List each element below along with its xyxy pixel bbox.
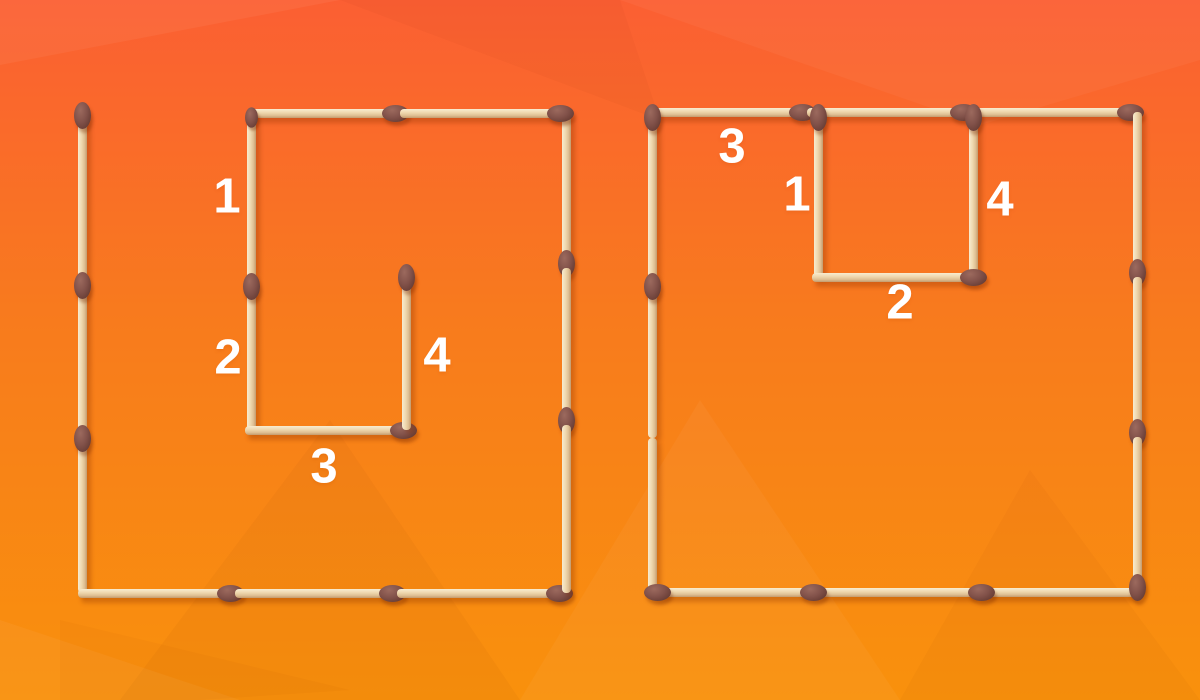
matchstick-match-1 [814, 112, 823, 277]
match-head-match-4 [965, 104, 982, 131]
matchstick-outer-right-1 [1133, 112, 1142, 277]
matchstick-outer-bottom-3 [976, 588, 1137, 597]
matchstick-match-4 [969, 112, 978, 277]
matchstick-match-3 [650, 108, 807, 117]
match-head-outer-right-3 [1129, 574, 1146, 601]
match-head-match-2 [960, 269, 987, 286]
matchstick-outer-bottom-1 [652, 588, 808, 597]
matchstick-outer-left-1 [648, 112, 657, 281]
match-head-outer-bottom-3 [968, 584, 995, 601]
matchstick-outer-top-2 [807, 108, 968, 117]
label-2-right-figure: 2 [886, 279, 913, 328]
matchstick-outer-top-3 [968, 108, 1135, 117]
right-figure: 3142 [0, 0, 1200, 700]
label-3-right-figure: 3 [718, 123, 745, 172]
match-head-match-1 [810, 104, 827, 131]
matchstick-outer-left-3 [648, 438, 657, 592]
match-head-outer-left-1 [644, 104, 661, 131]
matchstick-outer-right-3 [1133, 437, 1142, 592]
label-1-right-figure: 1 [783, 171, 810, 220]
matchstick-outer-right-2 [1133, 277, 1142, 437]
matchstick-outer-bottom-2 [808, 588, 976, 597]
match-head-outer-bottom-2 [800, 584, 827, 601]
puzzle-stage: 1234 3142 [0, 0, 1200, 700]
matchstick-outer-left-2 [648, 281, 657, 438]
label-4-right-figure: 4 [986, 176, 1013, 225]
match-head-outer-bottom-1 [644, 584, 671, 601]
match-head-outer-left-2 [644, 273, 661, 300]
